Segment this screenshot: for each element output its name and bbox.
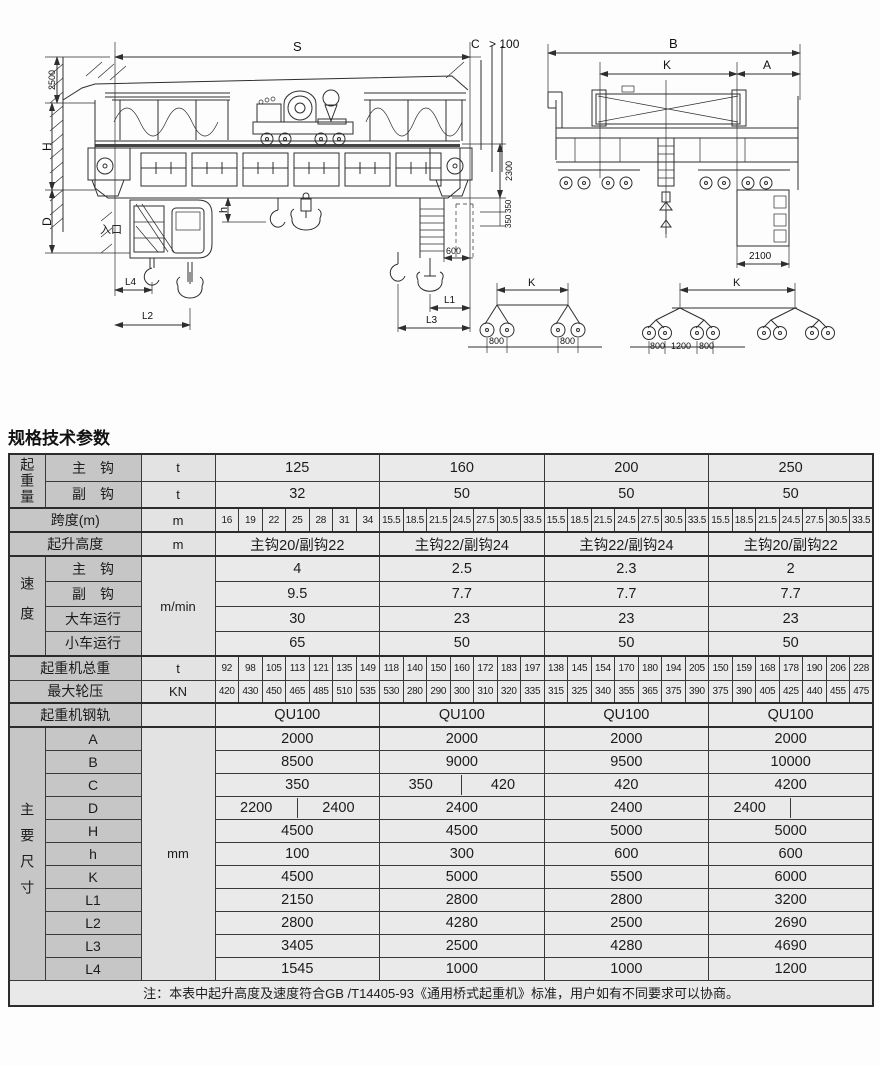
- row-label: H: [45, 819, 141, 842]
- main-hook-left: [177, 262, 203, 298]
- row-label: 起重机总重: [9, 656, 141, 680]
- value-cell: 154: [591, 656, 615, 680]
- value-cell: 350420: [380, 773, 545, 796]
- unit-cell: mm: [141, 727, 215, 980]
- value-cell: 320: [497, 680, 521, 703]
- value-cell: 32: [215, 481, 380, 508]
- value-cell: 2000: [544, 727, 709, 750]
- table-row: H 4500450050005000: [9, 819, 873, 842]
- aux-hook-left: [144, 258, 159, 285]
- dim-label-b: B: [669, 36, 678, 51]
- value-cell: 8500: [215, 750, 380, 773]
- value-cell: 390: [685, 680, 709, 703]
- value-cell: 170: [615, 656, 639, 680]
- row-label: 跨度(m): [9, 508, 141, 532]
- row-label: 大车运行: [45, 606, 141, 631]
- value-cell: 30.5: [826, 508, 850, 532]
- value-cell: 9500: [544, 750, 709, 773]
- value-cell: 15.5: [380, 508, 404, 532]
- value-cell: 50: [709, 481, 874, 508]
- row-group-label: 主要尺寸: [9, 727, 45, 980]
- table-row: L1 2150280028003200: [9, 888, 873, 911]
- value-subcell: 2400: [297, 798, 379, 818]
- value-cell: 159: [732, 656, 756, 680]
- value-cell: 194: [662, 656, 686, 680]
- value-cell: 1545: [215, 957, 380, 980]
- value-cell: 1000: [380, 957, 545, 980]
- value-cell: 315: [544, 680, 568, 703]
- crane-datasheet-page: S C > 100 2500 H D: [0, 0, 880, 1066]
- value-cell: 290: [427, 680, 451, 703]
- dim-label-hsmall: h: [218, 207, 230, 213]
- value-cell: 25: [286, 508, 310, 532]
- wheelbase-right-800a: 800: [650, 341, 665, 351]
- value-cell: 300: [380, 842, 545, 865]
- dim-label-a: A: [763, 58, 771, 72]
- value-cell: 375: [709, 680, 733, 703]
- value-cell: 4200: [709, 773, 874, 796]
- row-label: 起重机钢轨: [9, 703, 141, 727]
- value-cell: 5000: [380, 865, 545, 888]
- value-cell: 4690: [709, 934, 874, 957]
- value-cell: 4: [215, 556, 380, 581]
- value-cell: 105: [262, 656, 286, 680]
- value-cell: 535: [356, 680, 380, 703]
- value-cell: 197: [521, 656, 545, 680]
- value-cell: 9.5: [215, 581, 380, 606]
- row-label: 副 钩: [45, 481, 141, 508]
- value-cell: 33.5: [850, 508, 874, 532]
- value-cell: 118: [380, 656, 404, 680]
- wheelbase-right-k: K: [733, 277, 741, 289]
- value-cell: 10000: [709, 750, 874, 773]
- value-cell: 22002400: [215, 796, 380, 819]
- value-cell: 135: [333, 656, 357, 680]
- row-label: 起升高度: [9, 532, 141, 556]
- unit-cell: t: [141, 454, 215, 481]
- row-label: C: [45, 773, 141, 796]
- value-cell: 15.5: [544, 508, 568, 532]
- value-cell: 18.5: [732, 508, 756, 532]
- value-cell: 主钩20/副钩22: [215, 532, 380, 556]
- value-cell: 9000: [380, 750, 545, 773]
- value-cell: 23: [709, 606, 874, 631]
- value-cell: 2150: [215, 888, 380, 911]
- value-cell: 7.7: [544, 581, 709, 606]
- value-cell: 28: [309, 508, 333, 532]
- table-row: 起重机钢轨 QU100QU100QU100QU100: [9, 703, 873, 727]
- value-cell: 30: [215, 606, 380, 631]
- value-cell: 31: [333, 508, 357, 532]
- value-cell: 178: [779, 656, 803, 680]
- value-cell: 2400: [544, 796, 709, 819]
- value-cell: 150: [427, 656, 451, 680]
- value-subcell: 350: [380, 775, 461, 795]
- value-cell: 34: [356, 508, 380, 532]
- row-label: 小车运行: [45, 631, 141, 656]
- value-cell: 2000: [709, 727, 874, 750]
- value-cell: 主钩22/副钩24: [544, 532, 709, 556]
- value-cell: 24.5: [779, 508, 803, 532]
- end-truck-right: [430, 148, 472, 196]
- table-row: L2 2800428025002690: [9, 911, 873, 934]
- row-label: A: [45, 727, 141, 750]
- crane-technical-drawing: S C > 100 2500 H D: [0, 0, 880, 420]
- table-row: 小车运行 65505050: [9, 631, 873, 656]
- row-label: B: [45, 750, 141, 773]
- value-cell: 2500: [544, 911, 709, 934]
- wheelbase-left-800b: 800: [560, 336, 575, 346]
- value-cell: 425: [779, 680, 803, 703]
- table-row: 最大轮压 KN 42043045046548551053553028029030…: [9, 680, 873, 703]
- value-cell: 430: [239, 680, 263, 703]
- value-cell: 1200: [709, 957, 874, 980]
- dim-label-k: K: [663, 58, 671, 72]
- value-cell: 16: [215, 508, 239, 532]
- wheelbase-right-800b: 800: [699, 341, 714, 351]
- value-cell: 375: [662, 680, 686, 703]
- dim-label-s: S: [293, 39, 302, 54]
- value-cell: 365: [638, 680, 662, 703]
- value-cell: 100: [215, 842, 380, 865]
- value-cell: 24.5: [615, 508, 639, 532]
- unit-cell: t: [141, 656, 215, 680]
- table-row: 起重量 主 钩 t 125160200250: [9, 454, 873, 481]
- dim-label-l3: L3: [426, 315, 438, 326]
- value-cell: 149: [356, 656, 380, 680]
- value-cell: 450: [262, 680, 286, 703]
- value-cell: 485: [309, 680, 333, 703]
- value-cell: 350: [215, 773, 380, 796]
- value-subcell: 420: [461, 775, 543, 795]
- value-cell: 205: [685, 656, 709, 680]
- value-cell: 23: [544, 606, 709, 631]
- value-cell: 98: [239, 656, 263, 680]
- table-row: h 100300600600: [9, 842, 873, 865]
- wheelbase-left-800a: 800: [489, 336, 504, 346]
- aux-hook-mid: [270, 198, 285, 227]
- value-cell: 24.5: [450, 508, 474, 532]
- value-cell: QU100: [709, 703, 874, 727]
- table-row: 起升高度 m 主钩20/副钩22主钩22/副钩24主钩22/副钩24主钩20/副…: [9, 532, 873, 556]
- value-cell: 510: [333, 680, 357, 703]
- section-title: 规格技术参数: [8, 424, 880, 449]
- dim-label-2300: 2300: [504, 161, 514, 181]
- table-row: 大车运行 30232323: [9, 606, 873, 631]
- value-cell: 600: [709, 842, 874, 865]
- value-cell: 183: [497, 656, 521, 680]
- value-cell: 405: [756, 680, 780, 703]
- value-cell: 250: [709, 454, 874, 481]
- girder-panels: [141, 153, 441, 186]
- value-cell: 168: [756, 656, 780, 680]
- main-hook-bottom: [417, 258, 443, 291]
- value-cell: 7.7: [709, 581, 874, 606]
- value-cell: 5500: [544, 865, 709, 888]
- table-row: K 4500500055006000: [9, 865, 873, 888]
- value-subcell: 2200: [216, 798, 297, 818]
- value-cell: QU100: [215, 703, 380, 727]
- value-cell: 172: [474, 656, 498, 680]
- value-cell: 21.5: [591, 508, 615, 532]
- end-view-right-box: [737, 190, 789, 246]
- value-cell: 4500: [215, 819, 380, 842]
- trolley: [253, 90, 353, 145]
- value-cell: 15.5: [709, 508, 733, 532]
- dim-label-350b: 350: [504, 214, 513, 228]
- value-cell: 4280: [544, 934, 709, 957]
- walkway-railing-right: [364, 93, 466, 141]
- value-cell: 50: [709, 631, 874, 656]
- value-cell: 3405: [215, 934, 380, 957]
- end-view-wheels-right: [698, 170, 790, 189]
- table-row: L3 3405250042804690: [9, 934, 873, 957]
- value-cell: 2400: [709, 796, 874, 819]
- value-cell: 145: [568, 656, 592, 680]
- trolley-rail-band: [95, 144, 460, 147]
- value-cell: 50: [544, 631, 709, 656]
- value-cell: 30.5: [662, 508, 686, 532]
- value-cell: 113: [286, 656, 310, 680]
- unit-cell: m: [141, 508, 215, 532]
- value-cell: 7.7: [380, 581, 545, 606]
- unit-cell: m/min: [141, 556, 215, 656]
- value-cell: 300: [450, 680, 474, 703]
- value-cell: 2800: [215, 911, 380, 934]
- row-label: D: [45, 796, 141, 819]
- value-cell: 23: [380, 606, 545, 631]
- table-row: C 3503504204204200: [9, 773, 873, 796]
- row-group-label: 起重量: [9, 454, 45, 508]
- unit-cell: [141, 703, 215, 727]
- value-cell: 30.5: [497, 508, 521, 532]
- dim-label-clearance: > 100: [489, 37, 520, 51]
- unit-cell: m: [141, 532, 215, 556]
- value-cell: 228: [850, 656, 874, 680]
- value-cell: 27.5: [638, 508, 662, 532]
- row-label: L1: [45, 888, 141, 911]
- value-cell: 600: [544, 842, 709, 865]
- value-cell: 2800: [544, 888, 709, 911]
- entrance-label: 入口: [100, 224, 122, 236]
- value-subcell: 2400: [709, 798, 790, 818]
- value-cell: 160: [380, 454, 545, 481]
- value-cell: 420: [544, 773, 709, 796]
- row-label: h: [45, 842, 141, 865]
- table-row: D 22002400240024002400: [9, 796, 873, 819]
- value-cell: 3200: [709, 888, 874, 911]
- value-cell: 5000: [709, 819, 874, 842]
- dim-label-2500: 2500: [47, 70, 57, 90]
- value-cell: 455: [826, 680, 850, 703]
- value-cell: 190: [803, 656, 827, 680]
- value-cell: 310: [474, 680, 498, 703]
- main-hook-mid: [291, 193, 321, 230]
- value-cell: 2800: [380, 888, 545, 911]
- dim-label-d: D: [40, 217, 54, 226]
- table-row: L4 1545100010001200: [9, 957, 873, 980]
- value-cell: 主钩20/副钩22: [709, 532, 874, 556]
- row-label: 主 钩: [45, 556, 141, 581]
- value-cell: 27.5: [474, 508, 498, 532]
- value-cell: 21.5: [756, 508, 780, 532]
- value-cell: 50: [380, 481, 545, 508]
- value-cell: 18.5: [568, 508, 592, 532]
- table-row: 主要尺寸 A mm 2000200020002000: [9, 727, 873, 750]
- value-cell: 19: [239, 508, 263, 532]
- value-cell: 206: [826, 656, 850, 680]
- value-cell: 335: [521, 680, 545, 703]
- note-row: 注：本表中起升高度及速度符合GB /T14405-93《通用桥式起重机》标准，用…: [9, 980, 873, 1006]
- girder-outline: [95, 148, 460, 198]
- value-cell: 160: [450, 656, 474, 680]
- table-row: 副 钩 t 32505050: [9, 481, 873, 508]
- table-row: 起重机总重 t 92981051131211351491181401501601…: [9, 656, 873, 680]
- value-cell: 138: [544, 656, 568, 680]
- value-cell: 4500: [380, 819, 545, 842]
- value-cell: 475: [850, 680, 874, 703]
- value-cell: 22: [262, 508, 286, 532]
- dim-label-c: C: [471, 37, 480, 51]
- dim-label-350a: 350: [504, 199, 513, 213]
- table-row: 副 钩 9.57.77.77.7: [9, 581, 873, 606]
- row-label: L2: [45, 911, 141, 934]
- value-cell: 4280: [380, 911, 545, 934]
- value-cell: 140: [403, 656, 427, 680]
- end-view-wheels-left: [558, 170, 640, 189]
- value-cell: 主钩22/副钩24: [380, 532, 545, 556]
- value-cell: 440: [803, 680, 827, 703]
- table-row: 跨度(m) m 1619222528313415.518.521.524.527…: [9, 508, 873, 532]
- value-cell: 2400: [380, 796, 545, 819]
- end-truck-left: [88, 148, 130, 196]
- value-cell: 2000: [380, 727, 545, 750]
- value-cell: 1000: [544, 957, 709, 980]
- value-cell: 340: [591, 680, 615, 703]
- value-cell: 50: [380, 631, 545, 656]
- hook-block: [658, 80, 674, 238]
- wheelbase-left-k: K: [528, 277, 536, 289]
- value-cell: 530: [380, 680, 404, 703]
- value-cell: 4500: [215, 865, 380, 888]
- row-label: L4: [45, 957, 141, 980]
- value-cell: 92: [215, 656, 239, 680]
- dim-label-l2: L2: [142, 311, 154, 322]
- row-label: 副 钩: [45, 581, 141, 606]
- dim-label-l4: L4: [125, 277, 137, 288]
- value-cell: 2000: [215, 727, 380, 750]
- dim-label-h: H: [40, 142, 54, 151]
- value-cell: 465: [286, 680, 310, 703]
- dim-label-600: 600: [446, 246, 461, 256]
- value-cell: 18.5: [403, 508, 427, 532]
- table-row: B 85009000950010000: [9, 750, 873, 773]
- value-cell: QU100: [544, 703, 709, 727]
- value-cell: 6000: [709, 865, 874, 888]
- value-cell: 2: [709, 556, 874, 581]
- aux-hook-bottom: [390, 252, 405, 281]
- row-label: 最大轮压: [9, 680, 141, 703]
- value-cell: 390: [732, 680, 756, 703]
- value-cell: 2.3: [544, 556, 709, 581]
- value-cell: 65: [215, 631, 380, 656]
- roof-line: [63, 76, 468, 100]
- value-cell: 21.5: [427, 508, 451, 532]
- row-label: L3: [45, 934, 141, 957]
- value-cell: QU100: [380, 703, 545, 727]
- value-cell: 2500: [380, 934, 545, 957]
- wheelbase-right-1200: 1200: [671, 341, 691, 351]
- table-note: 注：本表中起升高度及速度符合GB /T14405-93《通用桥式起重机》标准，用…: [9, 980, 873, 1006]
- value-cell: 2690: [709, 911, 874, 934]
- value-cell: 125: [215, 454, 380, 481]
- value-cell: 180: [638, 656, 662, 680]
- spec-table: 起重量 主 钩 t 125160200250 副 钩 t 32505050 跨度…: [8, 453, 874, 1007]
- row-label: K: [45, 865, 141, 888]
- unit-cell: KN: [141, 680, 215, 703]
- value-cell: 27.5: [803, 508, 827, 532]
- value-cell: 2.5: [380, 556, 545, 581]
- value-cell: 420: [215, 680, 239, 703]
- value-cell: 280: [403, 680, 427, 703]
- table-row: 速度 主 钩 m/min 42.52.32: [9, 556, 873, 581]
- value-cell: 325: [568, 680, 592, 703]
- value-cell: 200: [544, 454, 709, 481]
- row-group-label: 速度: [9, 556, 45, 656]
- dim-label-2100: 2100: [749, 251, 772, 262]
- value-subcell: [790, 798, 872, 818]
- value-cell: 150: [709, 656, 733, 680]
- value-cell: 33.5: [685, 508, 709, 532]
- value-cell: 33.5: [521, 508, 545, 532]
- unit-cell: t: [141, 481, 215, 508]
- value-cell: 50: [544, 481, 709, 508]
- value-cell: 121: [309, 656, 333, 680]
- ladder: [420, 198, 444, 258]
- row-label: 主 钩: [45, 454, 141, 481]
- value-cell: 355: [615, 680, 639, 703]
- value-cell: 5000: [544, 819, 709, 842]
- dim-label-l1: L1: [444, 295, 456, 306]
